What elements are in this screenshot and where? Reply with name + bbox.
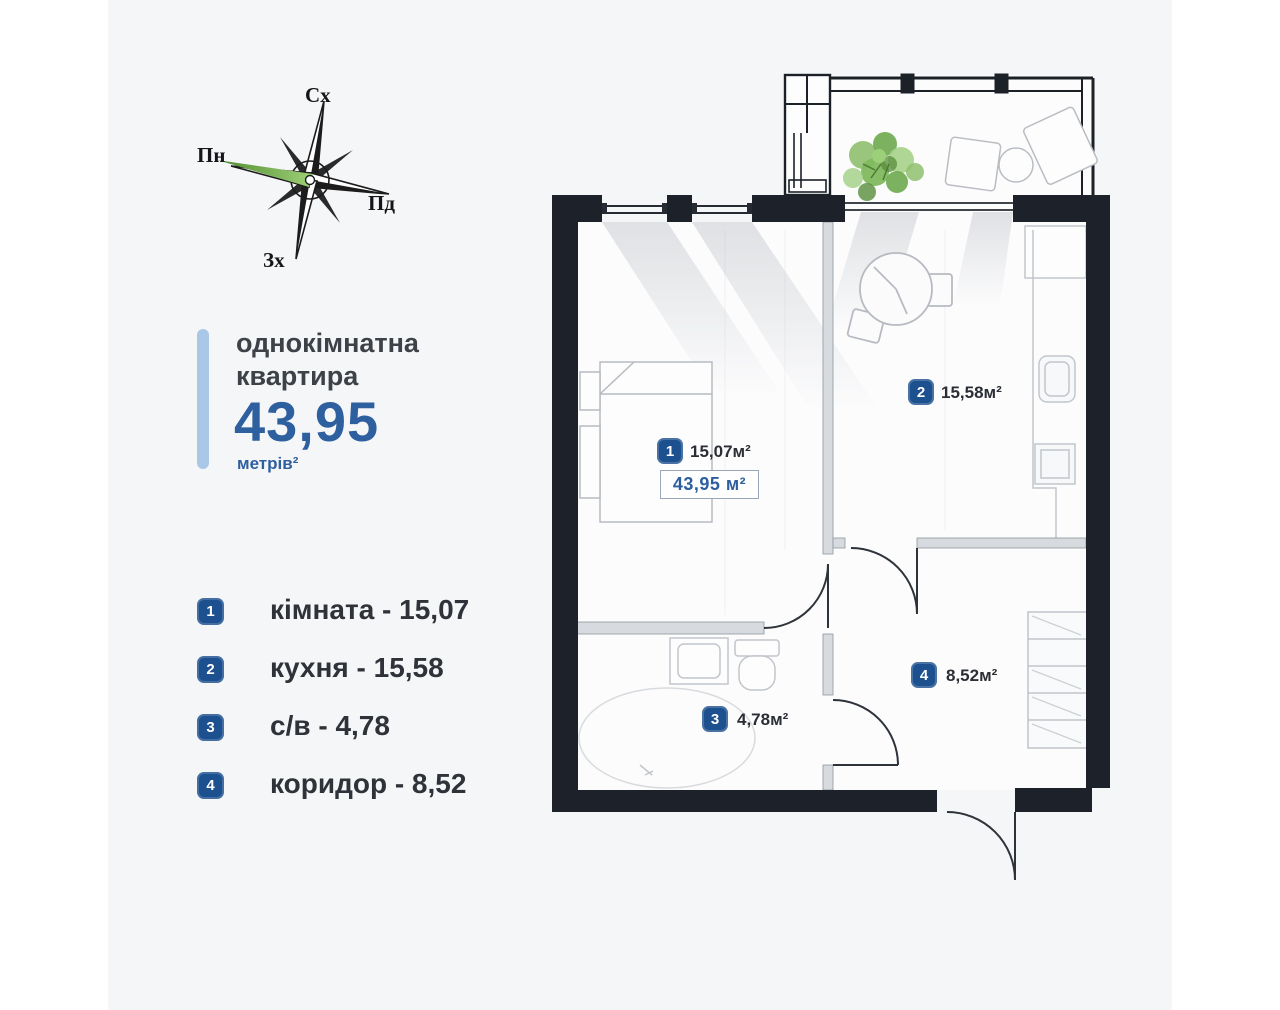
compass-label-east: Сх: [305, 83, 331, 108]
room-2-badge: 2: [908, 379, 934, 405]
compass-label-south: Пд: [368, 191, 395, 216]
legend-label-3: с/в - 4,78: [270, 710, 390, 742]
floor-plan: [545, 60, 1125, 920]
legend-item-room: 1 кімната - 15,07: [197, 598, 557, 625]
total-area-box: 43,95 м²: [660, 470, 759, 499]
room-3-area-label: 4,78м²: [737, 710, 788, 730]
compass-label-west: Зх: [263, 248, 285, 273]
accent-bar: [197, 329, 209, 469]
room-4-badge: 4: [911, 662, 937, 688]
legend-badge-4: 4: [197, 772, 224, 799]
legend-badge-1: 1: [197, 598, 224, 625]
title-block: однокімнатна квартира 43,95 метрів²: [197, 327, 497, 477]
room-4-area-label: 8,52м²: [946, 666, 997, 686]
compass: Сх Пн Пд Зх: [185, 70, 445, 280]
compass-label-north: Пн: [197, 143, 225, 168]
apartment-type-line1: однокімнатна: [236, 327, 419, 360]
page: Сх Пн Пд Зх однокімнатна квартира 43,95 …: [0, 0, 1280, 1010]
toilet: [735, 640, 779, 656]
legend-badge-2: 2: [197, 656, 224, 683]
legend-label-4: коридор - 8,52: [270, 768, 466, 800]
legend-label-1: кімната - 15,07: [270, 594, 469, 626]
room-3-badge: 3: [702, 706, 728, 732]
room-legend: 1 кімната - 15,07 2 кухня - 15,58 3 с/в …: [197, 598, 557, 830]
room-2-area-label: 15,58м²: [941, 383, 1002, 403]
legend-label-2: кухня - 15,58: [270, 652, 444, 684]
legend-item-bathroom: 3 с/в - 4,78: [197, 714, 557, 741]
total-area-unit: метрів²: [237, 454, 298, 474]
wardrobe: [1028, 612, 1087, 748]
entrance-door: [947, 812, 1015, 880]
legend-item-corridor: 4 коридор - 8,52: [197, 772, 557, 799]
apartment-type: однокімнатна квартира: [236, 327, 419, 393]
legend-item-kitchen: 2 кухня - 15,58: [197, 656, 557, 683]
room-1-badge: 1: [657, 438, 683, 464]
total-area-value: 43,95: [234, 389, 379, 454]
legend-badge-3: 3: [197, 714, 224, 741]
room-1-area-label: 15,07м²: [690, 442, 751, 462]
